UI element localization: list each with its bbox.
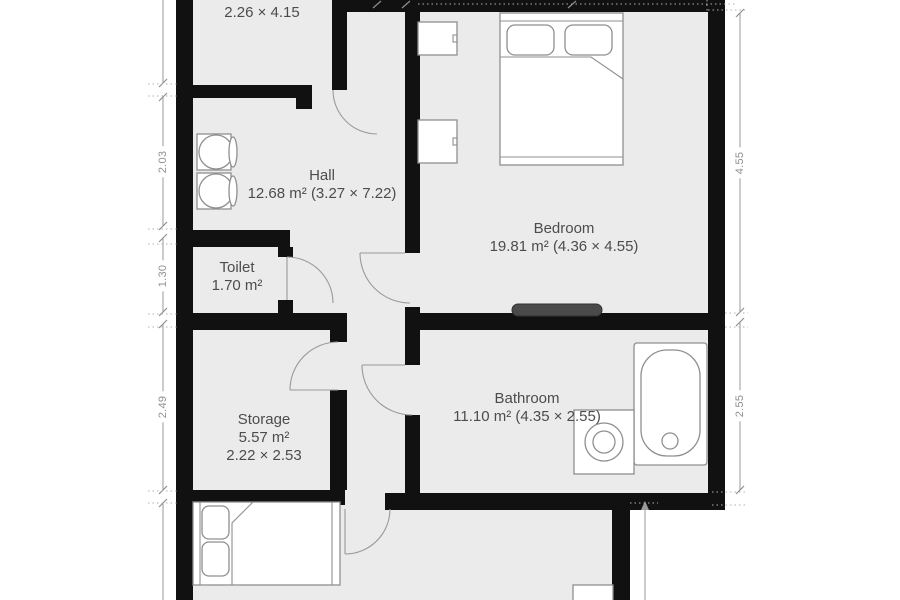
bathroom-details: 11.10 m² (4.35 × 2.55) <box>453 408 601 426</box>
wall-toproom-right <box>332 0 347 90</box>
wall-toproom-bottom <box>176 85 312 98</box>
pillow-icon <box>202 506 229 539</box>
radiator <box>512 304 602 316</box>
bathroom-name: Bathroom <box>453 390 601 408</box>
wall-bottomroom-right <box>612 507 630 600</box>
floor-plan: 9.38 m² 2.26 × 4.15 Hall 12.68 m² (3.27 … <box>0 0 900 600</box>
dim-right-2-55: 2.55 <box>733 391 747 422</box>
bedroom-name: Bedroom <box>490 220 639 238</box>
hall-label: Hall 12.68 m² (3.27 × 7.22) <box>248 167 397 203</box>
storage-label: Storage 5.57 m² 2.22 × 2.53 <box>226 411 301 465</box>
wall-toilet-top <box>176 230 290 247</box>
wall-bedroom-top <box>405 0 725 12</box>
floor-plan-drawing <box>0 0 900 600</box>
bathroom-label: Bathroom 11.10 m² (4.35 × 2.55) <box>453 390 601 426</box>
cabinet-fragment <box>573 585 613 600</box>
storage-area: 5.57 m² <box>226 429 301 447</box>
storage-name: Storage <box>226 411 301 429</box>
wall-toilet-jamb-bottom <box>278 300 293 313</box>
toproom-label: 9.38 m² 2.26 × 4.15 <box>224 0 299 22</box>
pillow-icon <box>507 25 554 55</box>
double-bed-bottom <box>193 502 340 585</box>
dim-left-1-30: 1.30 <box>156 261 170 292</box>
bedside-cabinet <box>418 120 457 163</box>
hall-details: 12.68 m² (3.27 × 7.22) <box>248 185 397 203</box>
wall-storage-top <box>176 313 347 330</box>
double-bed <box>500 13 623 165</box>
pillow-icon <box>565 25 612 55</box>
wall-toilet-jamb-top <box>278 247 293 257</box>
pillow-icon <box>202 542 229 576</box>
wall-toproom-door-jamb <box>296 85 312 109</box>
bathtub <box>634 343 707 465</box>
bedroom-details: 19.81 m² (4.36 × 4.55) <box>490 238 639 256</box>
wall-hall-bedroom-mid <box>405 307 420 365</box>
wall-storage-right-upper <box>330 330 347 342</box>
wall-storage-right-lower <box>330 390 347 490</box>
bathtub-drain <box>662 433 678 449</box>
hall-name: Hall <box>248 167 397 185</box>
toproom-dims: 2.26 × 4.15 <box>224 4 299 22</box>
dim-left-2-03: 2.03 <box>156 147 170 178</box>
dim-right-4-55: 4.55 <box>733 148 747 179</box>
wall-bathroom-bottom <box>385 493 725 510</box>
wall-bathroom-left-lower <box>405 415 420 500</box>
dim-left-2-49: 2.49 <box>156 392 170 423</box>
wall-right-outer <box>708 0 725 510</box>
toilet-label: Toilet 1.70 m² <box>212 259 263 295</box>
toilet-name: Toilet <box>212 259 263 277</box>
bedroom-label: Bedroom 19.81 m² (4.36 × 4.55) <box>490 220 639 256</box>
bedside-cabinet <box>418 22 457 55</box>
storage-dims: 2.22 × 2.53 <box>226 447 301 465</box>
toilet-area: 1.70 m² <box>212 277 263 295</box>
